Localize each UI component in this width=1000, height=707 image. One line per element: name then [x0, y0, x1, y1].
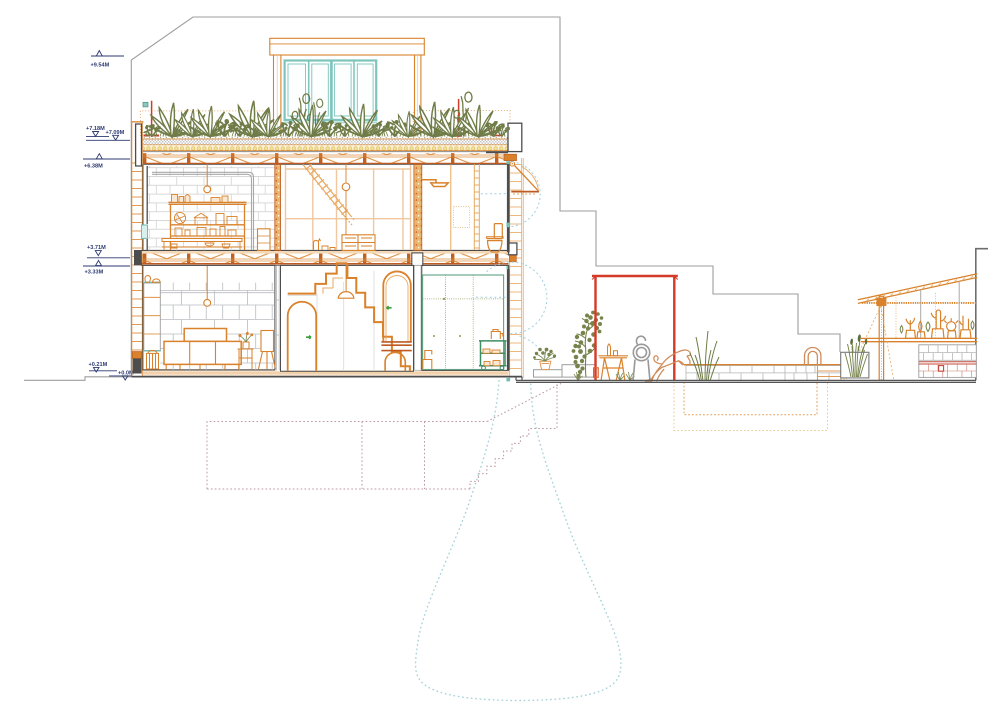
svg-text:+3.33M: +3.33M: [85, 270, 104, 276]
svg-text:+3.71M: +3.71M: [87, 245, 106, 251]
svg-text:+6.38M: +6.38M: [84, 164, 103, 170]
svg-text:+9.54M: +9.54M: [91, 63, 110, 69]
